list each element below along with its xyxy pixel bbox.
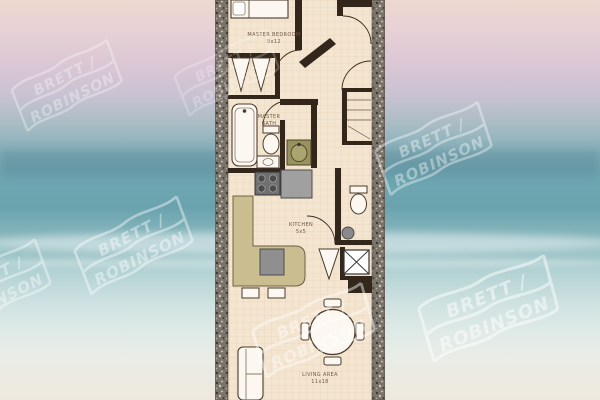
bed (231, 0, 288, 18)
toilet-hall-bath (350, 186, 367, 214)
dining-chair (324, 299, 341, 307)
toilet-master (263, 126, 279, 154)
exterior-wall-right (372, 0, 385, 400)
bathtub (232, 104, 257, 166)
sofa (238, 347, 263, 400)
vanity-sink (257, 156, 279, 168)
dining-table (310, 310, 355, 355)
room-label-living-area: LIVING AREA (302, 372, 338, 378)
room-label-master-bath-line1: MASTER (258, 114, 281, 120)
floor-plan: MASTER BEDROOM 9x12 MASTER BATH KITCHEN … (215, 0, 385, 400)
stove (255, 172, 280, 195)
dining-chair (301, 323, 309, 340)
room-label-kitchen: KITCHEN (289, 222, 313, 228)
dining-chair (356, 323, 364, 340)
corner-sink (342, 227, 354, 239)
room-label-master-bedroom: MASTER BEDROOM (247, 32, 300, 38)
room-size-master-bedroom: 9x12 (267, 39, 281, 45)
screenshot-root: MASTER BEDROOM 9x12 MASTER BATH KITCHEN … (0, 0, 600, 400)
bar-stool (242, 288, 259, 298)
room-size-living-area: 11x18 (311, 379, 328, 385)
room-label-master-bath-line2: BATH (262, 121, 277, 127)
room-size-kitchen: 5x5 (296, 229, 306, 235)
prep-sink (260, 249, 284, 275)
dining-chair (324, 357, 341, 365)
refrigerator (281, 170, 312, 198)
kitchen-sink (287, 140, 311, 165)
exterior-wall-left (215, 0, 228, 400)
bar-stool (268, 288, 285, 298)
